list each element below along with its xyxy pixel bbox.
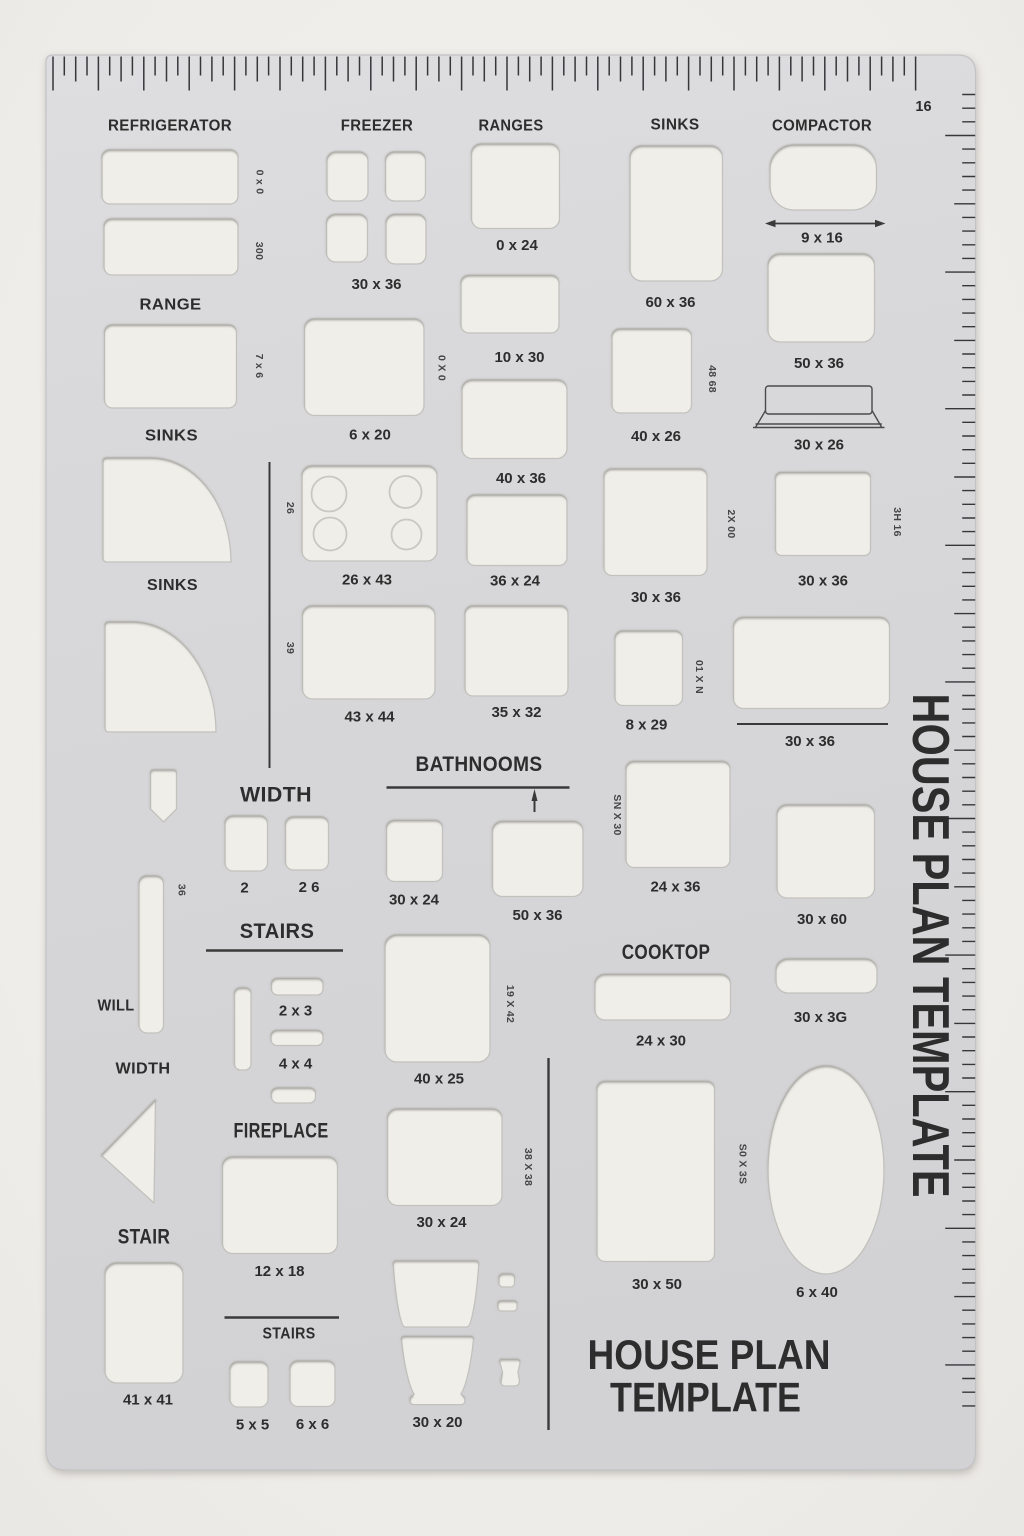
- svg-text:0 X 0: 0 X 0: [436, 355, 448, 381]
- svg-text:STAIRS: STAIRS: [263, 1326, 316, 1343]
- svg-text:30 x 26: 30 x 26: [794, 437, 844, 454]
- svg-text:HOUSE PLAN: HOUSE PLAN: [588, 1331, 831, 1378]
- svg-text:24 x 36: 24 x 36: [650, 879, 700, 896]
- svg-text:RANGES: RANGES: [479, 118, 544, 135]
- svg-text:24 x 30: 24 x 30: [636, 1033, 686, 1050]
- svg-text:38 X 38: 38 X 38: [522, 1148, 534, 1186]
- svg-text:30 x 36: 30 x 36: [785, 733, 835, 750]
- svg-text:43 x 44: 43 x 44: [344, 709, 395, 726]
- svg-text:40 x 25: 40 x 25: [414, 1071, 464, 1088]
- svg-text:6 x 6: 6 x 6: [296, 1416, 329, 1433]
- svg-text:30 x 50: 30 x 50: [632, 1276, 682, 1293]
- svg-text:50 x 36: 50 x 36: [512, 907, 562, 924]
- svg-text:S0 X 3S: S0 X 3S: [737, 1144, 749, 1185]
- svg-text:FIREPLACE: FIREPLACE: [234, 1120, 329, 1143]
- svg-text:50 x 36: 50 x 36: [794, 355, 844, 372]
- svg-text:12 x 18: 12 x 18: [254, 1263, 304, 1280]
- svg-text:30 x 24: 30 x 24: [416, 1214, 467, 1231]
- svg-text:40 x 36: 40 x 36: [496, 470, 546, 487]
- svg-text:60 x 36: 60 x 36: [645, 294, 695, 311]
- svg-text:STAIRS: STAIRS: [240, 920, 315, 943]
- svg-text:BATHNOOMS: BATHNOOMS: [416, 753, 543, 776]
- svg-text:41 x 41: 41 x 41: [123, 1392, 173, 1409]
- svg-text:0 x 0: 0 x 0: [254, 170, 266, 195]
- svg-text:8 x 29: 8 x 29: [626, 717, 668, 734]
- svg-text:4 x 4: 4 x 4: [279, 1056, 313, 1073]
- svg-text:36 x 24: 36 x 24: [490, 573, 541, 590]
- svg-text:0 x 24: 0 x 24: [496, 237, 538, 254]
- svg-text:7 x 6: 7 x 6: [253, 354, 265, 379]
- svg-text:WILL: WILL: [98, 998, 135, 1015]
- svg-text:2: 2: [240, 880, 248, 897]
- svg-text:30 x 36: 30 x 36: [631, 589, 681, 606]
- svg-text:48 68: 48 68: [706, 365, 718, 393]
- svg-text:300: 300: [253, 242, 265, 260]
- svg-text:01 X N: 01 X N: [693, 660, 705, 694]
- svg-text:5 x 5: 5 x 5: [236, 1417, 269, 1434]
- svg-text:SINKS: SINKS: [147, 577, 198, 594]
- svg-text:26: 26: [284, 502, 296, 514]
- svg-text:30 x 24: 30 x 24: [389, 892, 440, 909]
- svg-text:WIDTH: WIDTH: [240, 784, 312, 807]
- svg-text:RANGE: RANGE: [140, 297, 202, 314]
- svg-text:35 x 32: 35 x 32: [491, 704, 541, 721]
- svg-text:30 x 3G: 30 x 3G: [794, 1009, 847, 1026]
- svg-text:9 x 16: 9 x 16: [801, 230, 843, 247]
- svg-text:6 x 40: 6 x 40: [796, 1284, 838, 1301]
- svg-text:STAIR: STAIR: [118, 1226, 171, 1249]
- svg-text:WIDTH: WIDTH: [116, 1061, 171, 1078]
- svg-text:36: 36: [176, 884, 188, 896]
- svg-text:SINKS: SINKS: [651, 117, 700, 134]
- svg-text:16: 16: [915, 99, 931, 115]
- svg-text:3H 16: 3H 16: [891, 507, 903, 537]
- svg-text:6 x 20: 6 x 20: [349, 427, 391, 444]
- svg-text:COMPACTOR: COMPACTOR: [772, 118, 872, 135]
- svg-text:COOKTOP: COOKTOP: [622, 941, 711, 964]
- svg-text:26 x 43: 26 x 43: [342, 572, 392, 589]
- svg-text:REFRIGERATOR: REFRIGERATOR: [108, 118, 232, 135]
- svg-text:30 x 36: 30 x 36: [798, 573, 848, 590]
- svg-text:30 x 20: 30 x 20: [412, 1414, 462, 1431]
- svg-text:30 x 36: 30 x 36: [351, 276, 401, 293]
- svg-text:10 x 30: 10 x 30: [494, 349, 544, 366]
- svg-text:39: 39: [284, 642, 296, 654]
- svg-text:40 x 26: 40 x 26: [631, 428, 681, 445]
- svg-text:HOUSE PLAN TEMPLATE: HOUSE PLAN TEMPLATE: [901, 694, 959, 1198]
- svg-text:19 X 42: 19 X 42: [504, 985, 516, 1023]
- svg-text:2X 00: 2X 00: [725, 510, 737, 539]
- svg-text:2 x 3: 2 x 3: [279, 1003, 312, 1020]
- svg-text:30 x 60: 30 x 60: [797, 911, 847, 928]
- svg-text:TEMPLATE: TEMPLATE: [610, 1374, 801, 1421]
- svg-text:FREEZER: FREEZER: [341, 118, 414, 135]
- svg-text:2 6: 2 6: [299, 879, 320, 896]
- svg-text:SINKS: SINKS: [145, 428, 198, 445]
- svg-text:SN X 30: SN X 30: [611, 794, 623, 835]
